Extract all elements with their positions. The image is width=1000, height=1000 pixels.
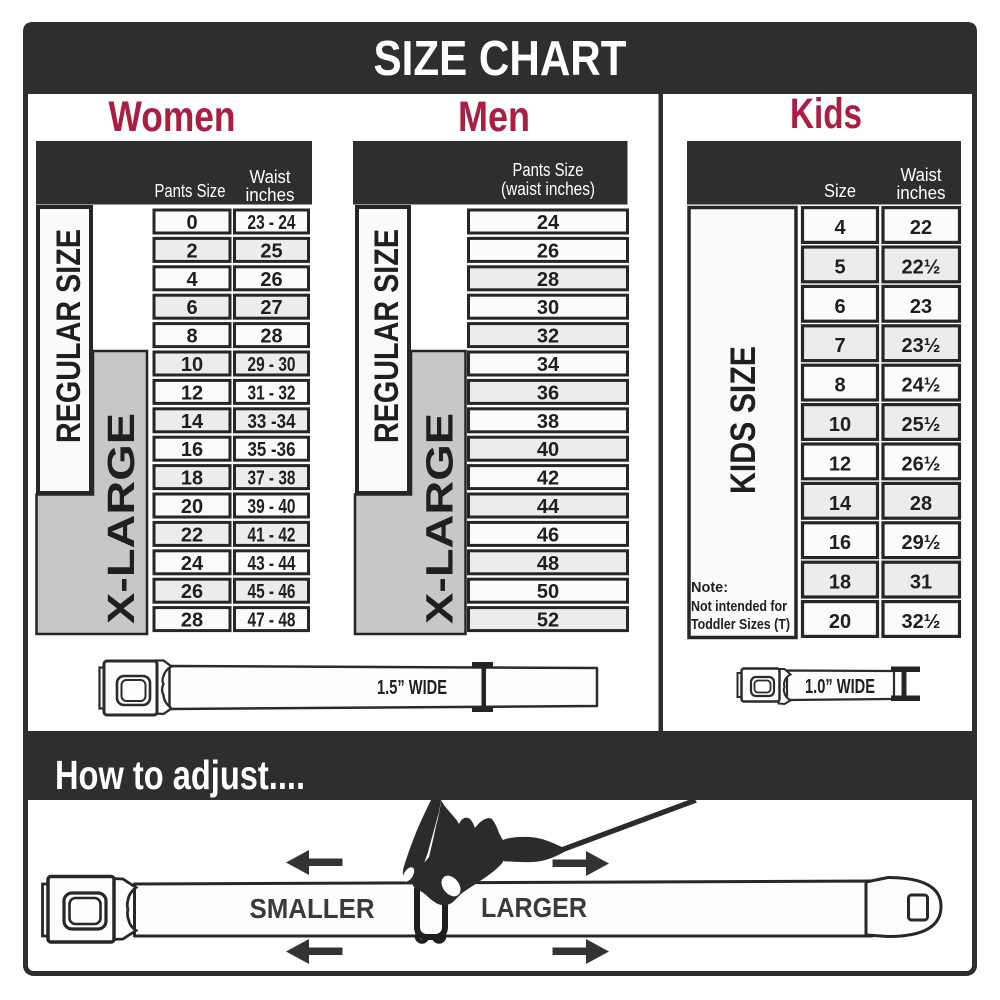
svg-text:22: 22 bbox=[181, 524, 203, 546]
svg-text:1.5” WIDE: 1.5” WIDE bbox=[377, 677, 447, 699]
svg-text:47 - 48: 47 - 48 bbox=[248, 610, 296, 632]
svg-text:Pants Size: Pants Size bbox=[513, 160, 584, 180]
svg-text:Men: Men bbox=[458, 93, 530, 141]
svg-text:4: 4 bbox=[834, 217, 846, 239]
svg-text:23: 23 bbox=[910, 296, 932, 318]
svg-text:8: 8 bbox=[186, 326, 197, 348]
svg-text:23 - 24: 23 - 24 bbox=[248, 212, 297, 234]
svg-text:30: 30 bbox=[537, 297, 559, 319]
svg-text:34: 34 bbox=[537, 354, 560, 376]
svg-text:28: 28 bbox=[910, 493, 932, 515]
svg-text:(waist inches): (waist inches) bbox=[501, 179, 595, 199]
svg-text:52: 52 bbox=[537, 610, 559, 632]
svg-text:41 - 42: 41 - 42 bbox=[248, 524, 296, 546]
svg-text:REGULAR SIZE: REGULAR SIZE bbox=[50, 229, 88, 443]
svg-text:14: 14 bbox=[829, 493, 852, 515]
svg-text:10: 10 bbox=[181, 354, 203, 376]
svg-text:16: 16 bbox=[829, 532, 851, 554]
svg-text:inches: inches bbox=[897, 183, 946, 203]
svg-text:6: 6 bbox=[186, 297, 197, 319]
svg-text:Waist: Waist bbox=[250, 167, 291, 187]
svg-text:0: 0 bbox=[186, 212, 197, 234]
svg-text:32½: 32½ bbox=[902, 611, 941, 633]
svg-text:SMALLER: SMALLER bbox=[250, 893, 375, 924]
svg-text:42: 42 bbox=[537, 468, 559, 490]
svg-text:31 - 32: 31 - 32 bbox=[248, 382, 296, 404]
svg-text:26: 26 bbox=[260, 269, 282, 291]
svg-text:X-LARGE: X-LARGE bbox=[420, 413, 462, 624]
svg-text:45 - 46: 45 - 46 bbox=[248, 581, 296, 603]
svg-text:36: 36 bbox=[537, 382, 559, 404]
svg-text:Note:: Note: bbox=[691, 580, 728, 596]
svg-text:24½: 24½ bbox=[902, 375, 941, 397]
svg-text:32: 32 bbox=[537, 326, 559, 348]
svg-text:26: 26 bbox=[537, 240, 559, 262]
svg-text:8: 8 bbox=[834, 375, 845, 397]
svg-text:5: 5 bbox=[834, 256, 845, 278]
svg-text:22½: 22½ bbox=[902, 256, 941, 278]
svg-text:46: 46 bbox=[537, 524, 559, 546]
svg-text:LARGER: LARGER bbox=[481, 892, 587, 923]
svg-text:inches: inches bbox=[246, 185, 295, 205]
svg-text:X-LARGE: X-LARGE bbox=[101, 413, 143, 624]
svg-text:25: 25 bbox=[260, 240, 282, 262]
svg-text:20: 20 bbox=[181, 496, 203, 518]
svg-text:24: 24 bbox=[537, 212, 560, 234]
svg-text:1.0” WIDE: 1.0” WIDE bbox=[805, 676, 875, 698]
svg-text:35 -36: 35 -36 bbox=[248, 439, 296, 461]
svg-text:23½: 23½ bbox=[902, 335, 941, 357]
svg-text:SIZE CHART: SIZE CHART bbox=[374, 32, 627, 86]
svg-text:KIDS SIZE: KIDS SIZE bbox=[724, 346, 763, 494]
svg-text:How to adjust....: How to adjust.... bbox=[55, 752, 305, 798]
svg-text:4: 4 bbox=[186, 269, 198, 291]
svg-text:29½: 29½ bbox=[902, 532, 941, 554]
svg-text:18: 18 bbox=[181, 468, 203, 490]
svg-text:Kids: Kids bbox=[790, 90, 862, 138]
svg-text:Waist: Waist bbox=[901, 165, 942, 185]
svg-text:6: 6 bbox=[834, 296, 845, 318]
svg-text:28: 28 bbox=[537, 269, 559, 291]
svg-text:28: 28 bbox=[260, 326, 282, 348]
svg-text:44: 44 bbox=[537, 496, 560, 518]
svg-text:REGULAR SIZE: REGULAR SIZE bbox=[368, 229, 406, 443]
svg-text:10: 10 bbox=[829, 414, 851, 436]
svg-text:12: 12 bbox=[829, 453, 851, 475]
svg-text:2: 2 bbox=[186, 240, 197, 262]
svg-text:Women: Women bbox=[109, 93, 236, 141]
svg-text:Toddler Sizes (T): Toddler Sizes (T) bbox=[691, 617, 790, 633]
svg-text:48: 48 bbox=[537, 553, 559, 575]
svg-text:18: 18 bbox=[829, 572, 851, 594]
svg-text:26: 26 bbox=[181, 581, 203, 603]
svg-text:31: 31 bbox=[910, 572, 932, 594]
svg-text:7: 7 bbox=[834, 335, 845, 357]
svg-text:43 - 44: 43 - 44 bbox=[248, 553, 297, 575]
svg-text:24: 24 bbox=[181, 553, 204, 575]
svg-text:38: 38 bbox=[537, 411, 559, 433]
svg-text:40: 40 bbox=[537, 439, 559, 461]
svg-text:Size: Size bbox=[824, 181, 856, 201]
svg-text:20: 20 bbox=[829, 611, 851, 633]
svg-text:14: 14 bbox=[181, 411, 204, 433]
svg-text:28: 28 bbox=[181, 610, 203, 632]
svg-text:16: 16 bbox=[181, 439, 203, 461]
svg-text:50: 50 bbox=[537, 581, 559, 603]
svg-text:Pants Size: Pants Size bbox=[155, 181, 226, 201]
svg-text:29 - 30: 29 - 30 bbox=[248, 354, 296, 376]
svg-text:25½: 25½ bbox=[902, 414, 941, 436]
svg-text:33 -34: 33 -34 bbox=[248, 411, 297, 433]
svg-text:26½: 26½ bbox=[902, 453, 941, 475]
svg-text:39 - 40: 39 - 40 bbox=[248, 496, 296, 518]
svg-text:22: 22 bbox=[910, 217, 932, 239]
svg-text:Not intended for: Not intended for bbox=[691, 599, 787, 615]
svg-text:37 - 38: 37 - 38 bbox=[248, 468, 296, 490]
svg-text:12: 12 bbox=[181, 382, 203, 404]
svg-text:27: 27 bbox=[260, 297, 282, 319]
